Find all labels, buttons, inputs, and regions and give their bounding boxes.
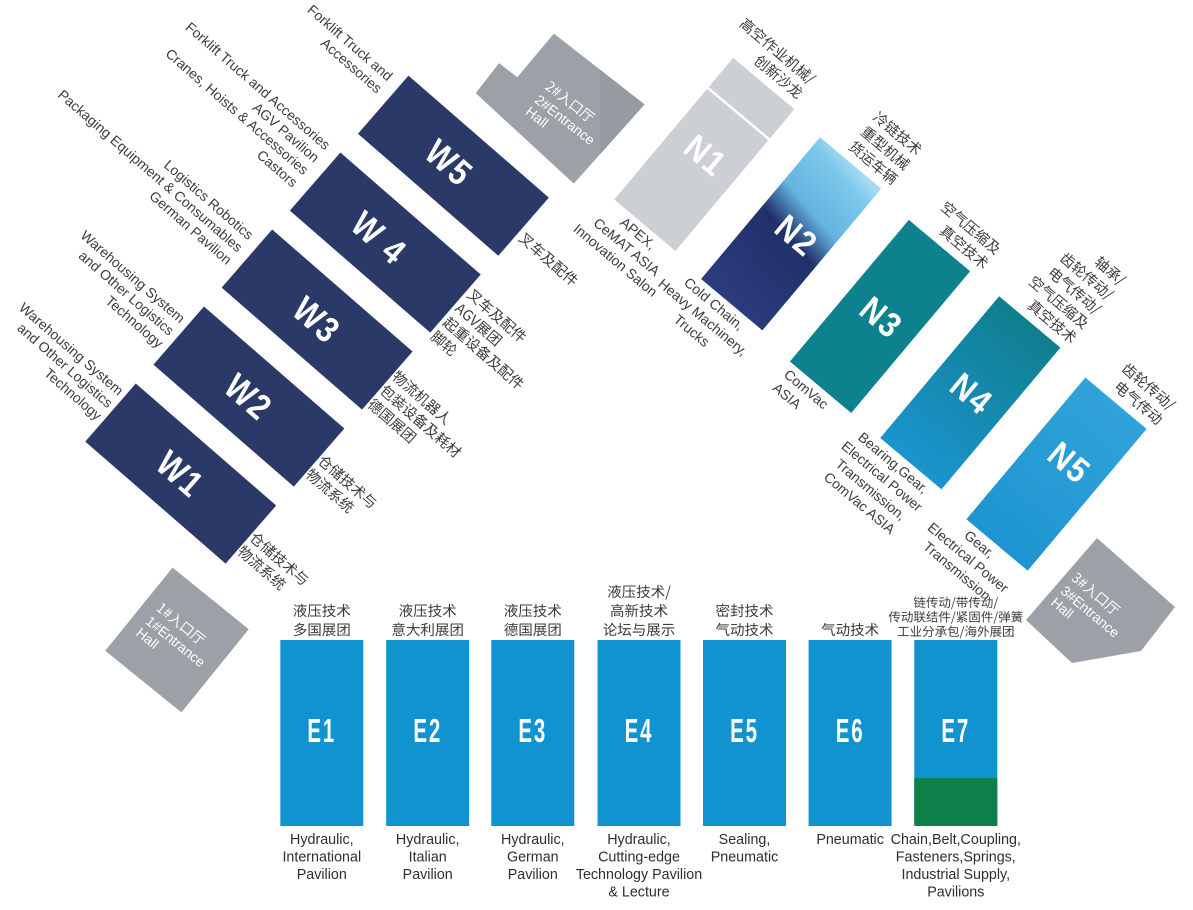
svg-text:E7: E7	[941, 712, 970, 749]
svg-text:E3: E3	[518, 712, 547, 749]
svg-text:E4: E4	[625, 712, 654, 749]
svg-text:Pavilion: Pavilion	[508, 867, 558, 883]
svg-text:International: International	[282, 850, 361, 866]
svg-text:Pneumatic: Pneumatic	[711, 850, 779, 866]
svg-text:Hydraulic,: Hydraulic,	[501, 832, 565, 848]
svg-text:Pneumatic: Pneumatic	[816, 832, 884, 848]
svg-text:E6: E6	[836, 712, 865, 749]
svg-text:Chain,Belt,Coupling,: Chain,Belt,Coupling,	[891, 832, 1021, 848]
svg-text:E1: E1	[307, 712, 336, 749]
svg-text:Industrial Supply,: Industrial Supply,	[901, 867, 1010, 883]
svg-text:Pavilion: Pavilion	[297, 867, 347, 883]
svg-text:Fasteners,Springs,: Fasteners,Springs,	[896, 850, 1016, 866]
svg-text:Pavilions: Pavilions	[927, 885, 984, 901]
svg-text:Hydraulic,: Hydraulic,	[290, 832, 354, 848]
svg-text:German: German	[507, 850, 559, 866]
svg-text:Packaging Equipment & Consumab: Packaging Equipment & Consumables	[55, 86, 246, 255]
svg-text:& Lecture: & Lecture	[608, 885, 669, 901]
svg-text:E2: E2	[413, 712, 442, 749]
svg-text:Hydraulic,: Hydraulic,	[396, 832, 460, 848]
svg-text:E5: E5	[730, 712, 759, 749]
svg-text:Sealing,: Sealing,	[719, 832, 771, 848]
svg-text:Hydraulic,: Hydraulic,	[607, 832, 671, 848]
svg-text:Technology Pavilion: Technology Pavilion	[576, 867, 702, 883]
svg-text:Pavilion: Pavilion	[403, 867, 453, 883]
svg-text:Italian: Italian	[409, 850, 447, 866]
svg-text:Cutting-edge: Cutting-edge	[598, 850, 680, 866]
